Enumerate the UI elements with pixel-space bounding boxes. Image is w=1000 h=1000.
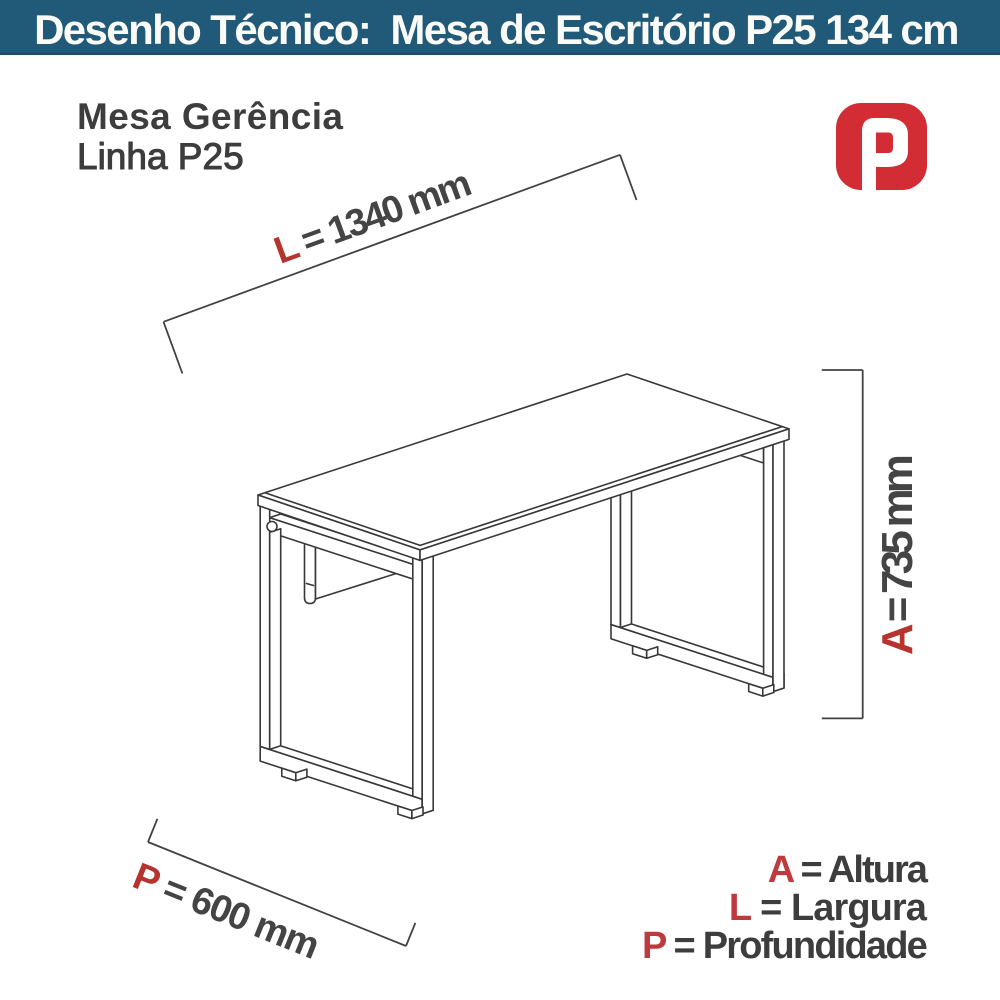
svg-text:Linha P25: Linha P25 [77,136,244,177]
svg-text:Mesa Gerência: Mesa Gerência [77,96,343,137]
svg-text:Desenho Técnico: Mesa de Escr: Desenho Técnico: Mesa de Escritório P25 … [34,6,958,53]
svg-text:P = Profundidade: P = Profundidade [642,925,927,967]
svg-text:L = Largura: L = Largura [729,887,928,929]
svg-text:A = Altura: A = Altura [768,849,929,891]
svg-text:A = 735 mm: A = 735 mm [873,456,922,655]
